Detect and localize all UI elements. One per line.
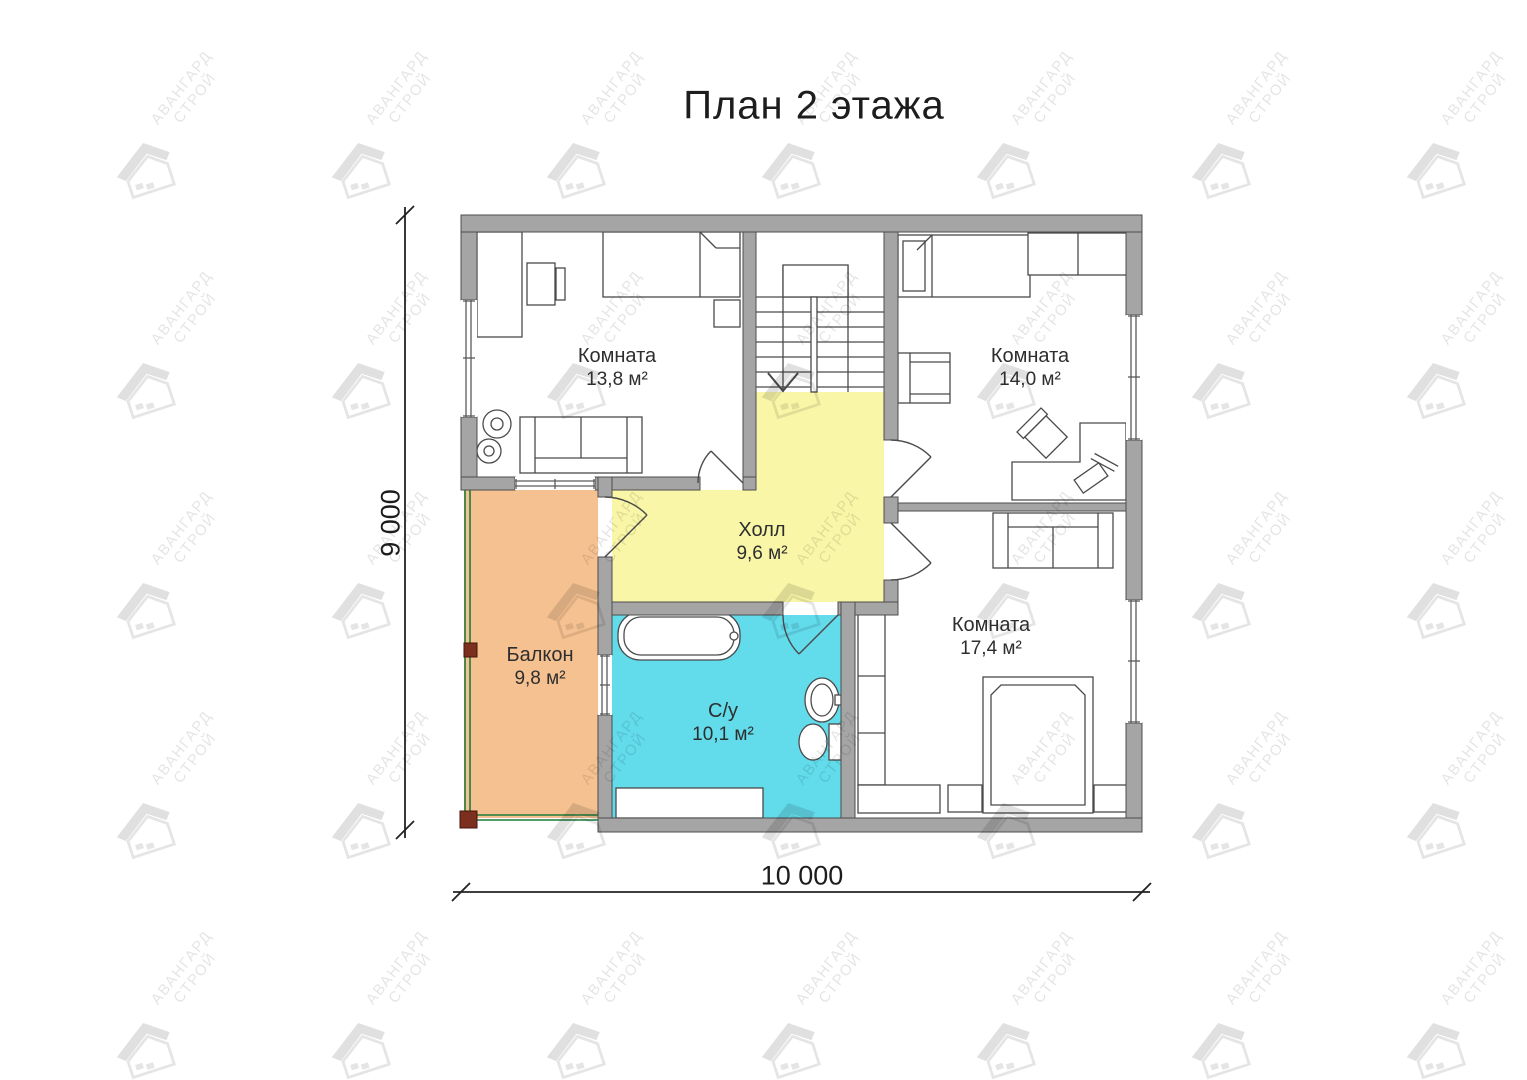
room-name: Комната <box>991 345 1069 368</box>
room-name: Комната <box>952 614 1030 637</box>
window-icon <box>1126 600 1142 723</box>
room-label-top-left: Комната 13,8 м² <box>578 345 656 391</box>
room-area: 10,1 м² <box>692 723 754 746</box>
counter-icon <box>616 788 763 818</box>
double-bed-icon <box>983 677 1093 813</box>
window-icon <box>461 300 477 417</box>
bathtub-icon <box>618 612 740 660</box>
room-area: 17,4 м² <box>952 637 1030 660</box>
room-name: Балкон <box>506 644 573 667</box>
bed-icon <box>898 235 1030 297</box>
room-name: Холл <box>736 519 787 542</box>
room-area: 14,0 м² <box>991 368 1069 391</box>
monitor-icon <box>527 263 555 305</box>
armchair-icon <box>898 353 950 403</box>
nightstand-icon <box>948 785 982 812</box>
room-label-top-right: Комната 14,0 м² <box>991 345 1069 391</box>
room-label-balcony: Балкон 9,8 м² <box>506 644 573 690</box>
room-area: 9,6 м² <box>736 542 787 565</box>
nightstand-icon <box>1094 785 1128 812</box>
width-dimension-label: 10 000 <box>761 861 844 892</box>
height-dimension-label: 9 000 <box>376 489 407 557</box>
railing-post-icon <box>460 811 477 828</box>
room-name: Комната <box>578 345 656 368</box>
floor-plan-page: АВАНГАРДСТРОЙАВАНГАРДСТРОЙАВАНГАРДСТРОЙА… <box>0 0 1527 1080</box>
sofa-icon <box>993 513 1113 568</box>
railing-post-icon <box>464 643 477 657</box>
window-icon <box>515 477 595 490</box>
room-name: С/у <box>692 700 754 723</box>
window-icon <box>1126 315 1142 440</box>
room-area: 13,8 м² <box>578 368 656 391</box>
wardrobe-icon <box>1028 233 1128 275</box>
page-title: План 2 этажа <box>683 84 945 129</box>
desk-icon <box>477 232 522 337</box>
sofa-icon <box>520 417 642 473</box>
nightstand-icon <box>714 300 740 327</box>
room-label-bottom-right: Комната 17,4 м² <box>952 614 1030 660</box>
window-icon <box>598 655 612 715</box>
bed-icon <box>603 232 740 297</box>
room-area: 9,8 м² <box>506 667 573 690</box>
room-label-hall: Холл 9,6 м² <box>736 519 787 565</box>
toilet-icon <box>799 724 841 760</box>
room-label-bathroom: С/у 10,1 м² <box>692 700 754 746</box>
